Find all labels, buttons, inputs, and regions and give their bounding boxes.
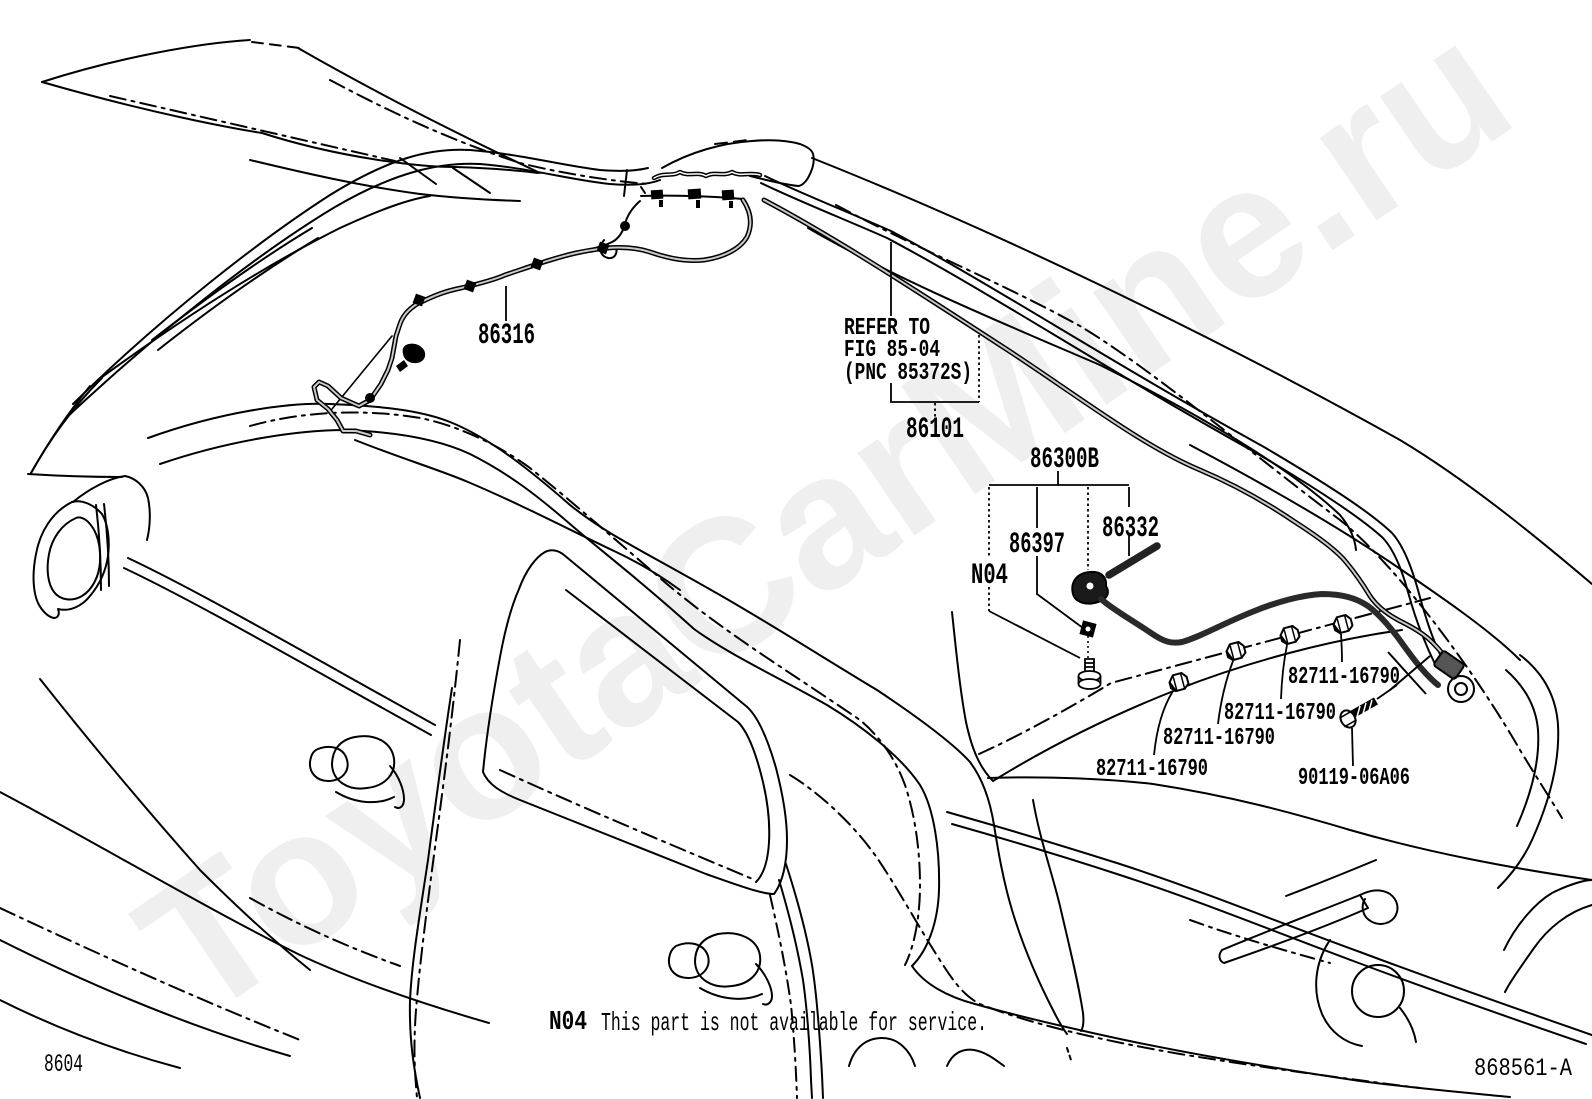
svg-text:86300B: 86300B [1030,443,1099,477]
svg-text:86397: 86397 [1009,528,1065,562]
svg-text:N04: N04 [549,1008,587,1038]
svg-text:82711-16790: 82711-16790 [1224,700,1336,727]
svg-text:82711-16790: 82711-16790 [1163,725,1275,752]
svg-text:86101: 86101 [906,413,964,447]
svg-text:82711-16790: 82711-16790 [1288,664,1400,691]
svg-text:86332: 86332 [1102,512,1159,546]
svg-text:86316: 86316 [478,319,535,353]
svg-text:8604: 8604 [44,1050,83,1079]
svg-text:(PNC 85372S): (PNC 85372S) [844,360,972,387]
svg-text:868561-A: 868561-A [1474,1054,1572,1083]
svg-text:82711-16790: 82711-16790 [1096,756,1208,783]
svg-text:ToyotaCarMine.ru: ToyotaCarMine.ru [104,0,1546,1057]
svg-text:N04: N04 [971,559,1008,593]
svg-text:90119-06A06: 90119-06A06 [1298,765,1410,792]
svg-text:This part is not available for: This part is not available for service. [601,1008,987,1038]
